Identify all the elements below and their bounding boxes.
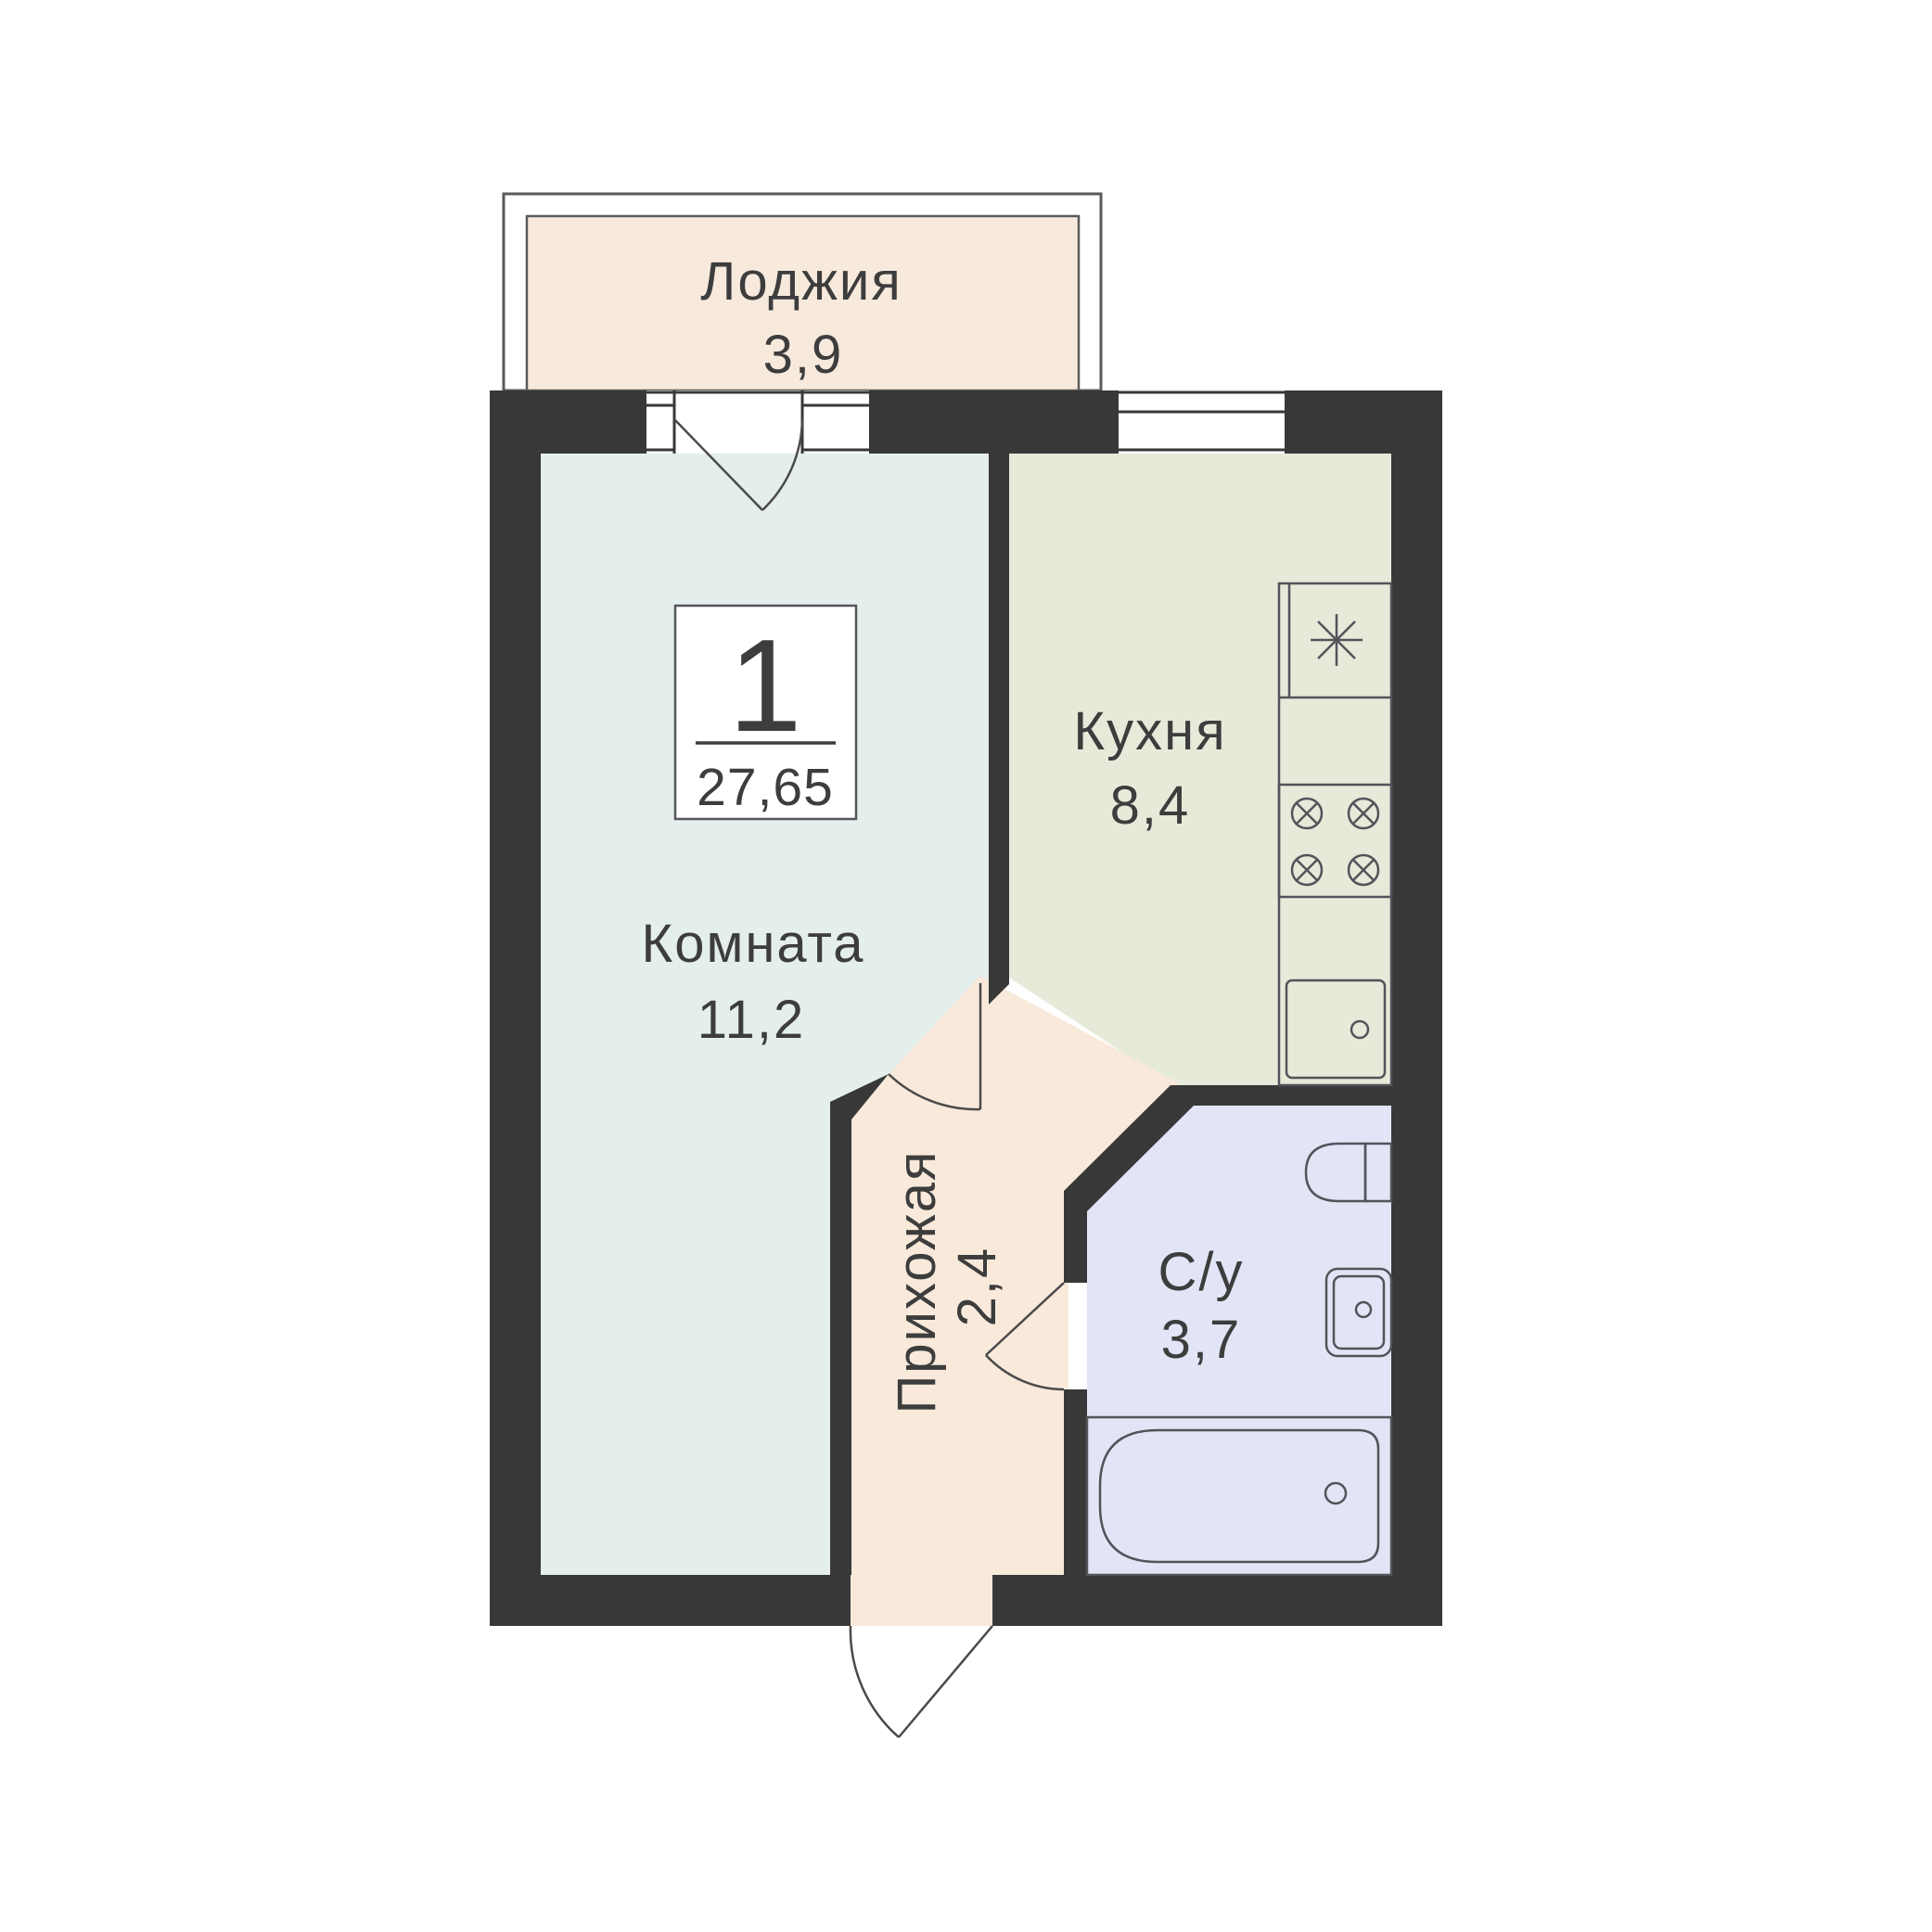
loggia-area-label: 3,9 xyxy=(763,325,844,385)
wall-bottom-segment-1 xyxy=(490,1575,851,1626)
wall-top-segment-2 xyxy=(869,390,1119,454)
wall-right xyxy=(1391,390,1442,1626)
unit-info-badge: 1 27,65 xyxy=(675,606,856,819)
hallway-area-label: 2,4 xyxy=(947,1247,1007,1327)
loggia-label: Лоджия xyxy=(700,251,902,312)
hallway-label: Прихожая xyxy=(887,1150,947,1414)
kitchen-area xyxy=(1009,454,1391,1085)
floor-plan-canvas: 1 27,65 Лоджия 3,9 Комната 11,2 Кухня 8,… xyxy=(0,0,1932,1932)
kitchen-label: Кухня xyxy=(1073,701,1226,761)
kitchen-area-label: 8,4 xyxy=(1110,775,1191,836)
unit-total-area: 27,65 xyxy=(697,758,834,817)
wall-bottom-segment-2 xyxy=(992,1575,1442,1626)
living-label: Комната xyxy=(641,914,864,974)
wall-left xyxy=(490,390,541,1626)
wall-kitchen-bathroom xyxy=(1171,1085,1391,1106)
living-area-label: 11,2 xyxy=(697,990,806,1050)
kitchen-window-opening xyxy=(1119,390,1285,454)
balcony-opening xyxy=(646,390,869,454)
wall-top-segment-3 xyxy=(1285,390,1442,454)
room-floor-areas xyxy=(541,454,1391,1626)
bathroom-area-label: 3,7 xyxy=(1161,1310,1242,1370)
wall-hall-bathroom-lower xyxy=(1064,1389,1087,1575)
unit-rooms-count: 1 xyxy=(729,612,802,760)
bathroom-label: С/у xyxy=(1158,1242,1245,1302)
wall-hall-bathroom-upper xyxy=(1064,1191,1087,1283)
wall-living-kitchen xyxy=(989,454,1009,979)
wall-top-segment-1 xyxy=(490,390,646,454)
kitchen-window xyxy=(1119,390,1285,454)
floor-plan: 1 27,65 Лоджия 3,9 Комната 11,2 Кухня 8,… xyxy=(0,0,1932,1932)
